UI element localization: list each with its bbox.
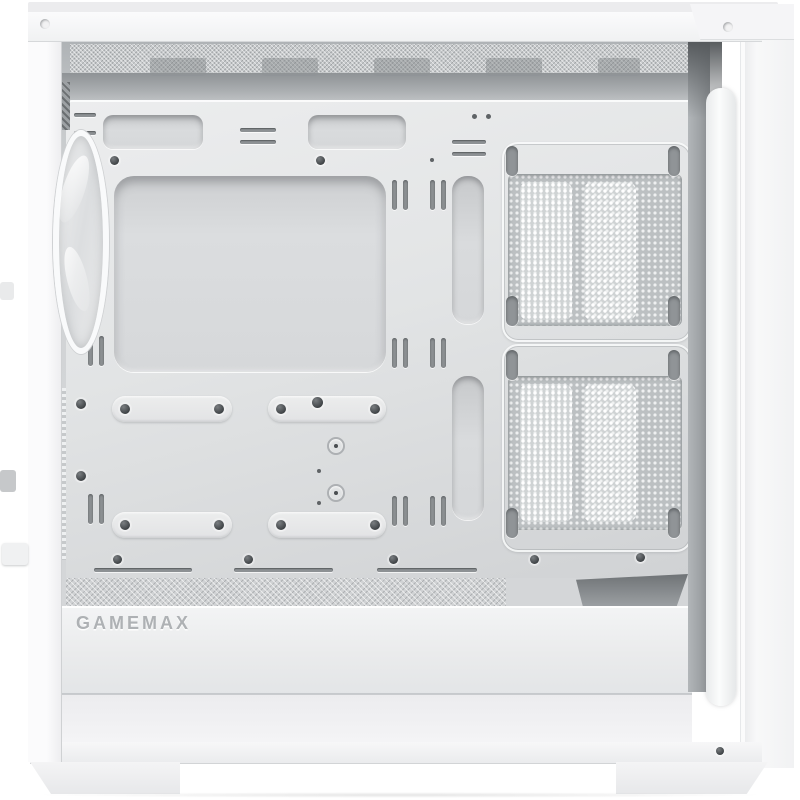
front-clip-tab <box>2 543 28 565</box>
cable-routing-cutout-1 <box>452 176 484 324</box>
mesh-highlight <box>584 384 636 522</box>
tray-edge-screw <box>76 471 86 481</box>
fan-blade-highlight <box>59 245 94 314</box>
pc-case-photo: GAMEMAX <box>0 0 800 800</box>
front-clip-tab <box>0 470 16 492</box>
fan-screw-slot <box>506 350 518 380</box>
standoff-hole <box>327 484 345 502</box>
ssd-screw <box>120 520 130 530</box>
ssd-screw <box>370 404 380 414</box>
cable-routing-cutout-2 <box>452 376 484 520</box>
fan-screw-slot <box>668 350 680 380</box>
standoff-hole <box>327 437 345 455</box>
top-interior-shadow <box>62 73 692 103</box>
cable-tie-slot <box>392 338 397 368</box>
tray-bottom-screw <box>389 555 398 564</box>
tray-screw <box>110 156 119 165</box>
right-side-panel <box>740 8 794 768</box>
case-foot-left <box>30 762 180 794</box>
case-foot-right <box>616 762 768 794</box>
tray-screw <box>316 156 325 165</box>
fan-screw-slot <box>506 296 518 326</box>
tray-pin-hole <box>486 114 491 119</box>
tray-vent-slot <box>452 140 486 144</box>
panel-seam-dark <box>736 36 741 750</box>
tray-vent-slot <box>240 140 276 144</box>
tray-pin-hole <box>472 114 477 119</box>
ssd-screw <box>276 520 286 530</box>
cable-tie-slot <box>392 180 397 210</box>
tray-bottom-screw <box>244 555 253 564</box>
shroud-top-slot <box>234 568 333 572</box>
cable-grommet-cutout-2 <box>308 115 406 149</box>
tray-pin-hole <box>317 501 321 505</box>
cable-tie-slot <box>403 338 408 368</box>
fan-screw-slot <box>668 146 680 176</box>
floor-shadow <box>30 792 770 798</box>
ssd-notch-screw <box>312 397 323 408</box>
shroud-vent-mesh <box>66 578 506 606</box>
ssd-screw <box>370 520 380 530</box>
base-strip <box>30 742 762 764</box>
shroud-top-slot <box>377 568 477 572</box>
ssd-screw <box>276 404 286 414</box>
right-panel-highlight <box>741 8 745 768</box>
cable-tie-slot <box>430 496 435 526</box>
fan-screw-slot <box>668 296 680 326</box>
cable-tie-slot <box>99 494 104 524</box>
top-frame <box>28 12 762 42</box>
tray-vent-slot <box>452 152 486 156</box>
front-intake-fan <box>53 130 109 354</box>
thumbscrew-hole <box>40 19 50 29</box>
ssd-screw <box>120 404 130 414</box>
front-clip-tab <box>0 282 14 300</box>
tray-bottom-screw <box>113 555 122 564</box>
cable-tie-slot <box>430 338 435 368</box>
gamemax-logo: GAMEMAX <box>76 613 191 635</box>
tray-vent-slot <box>74 113 96 117</box>
tray-bottom-screw <box>530 555 539 564</box>
top-right-panel <box>690 4 794 40</box>
fan-screw-slot <box>506 146 518 176</box>
fan-screw-slot <box>506 508 518 538</box>
cable-tie-slot <box>441 338 446 368</box>
tray-vent-slot <box>240 128 276 132</box>
shroud-top-slot <box>94 568 192 572</box>
cable-tie-slot <box>441 496 446 526</box>
thumbscrew-hole <box>723 22 733 32</box>
cable-tie-slot <box>441 180 446 210</box>
cable-tie-slot <box>403 496 408 526</box>
cable-tie-slot <box>99 336 104 366</box>
cable-tie-slot <box>88 494 93 524</box>
front-panel-column <box>28 28 62 762</box>
lower-front-panel <box>62 694 692 742</box>
cable-tie-slot <box>392 496 397 526</box>
ssd-screw <box>214 520 224 530</box>
tray-edge-screw <box>76 399 86 409</box>
cable-tie-slot <box>403 180 408 210</box>
cpu-cooler-cutout <box>114 176 386 372</box>
base-screw <box>716 747 724 755</box>
cable-tie-slot <box>430 180 435 210</box>
rear-edge-column <box>706 88 736 706</box>
mesh-highlight <box>520 182 572 320</box>
mesh-highlight <box>520 384 572 522</box>
fan-screw-slot <box>668 508 680 538</box>
tray-bottom-screw <box>636 553 645 562</box>
mesh-highlight <box>584 182 636 320</box>
tray-pin-hole <box>430 158 434 162</box>
ssd-screw <box>214 404 224 414</box>
cable-grommet-cutout-1 <box>103 115 203 149</box>
tray-pin-hole <box>317 469 321 473</box>
